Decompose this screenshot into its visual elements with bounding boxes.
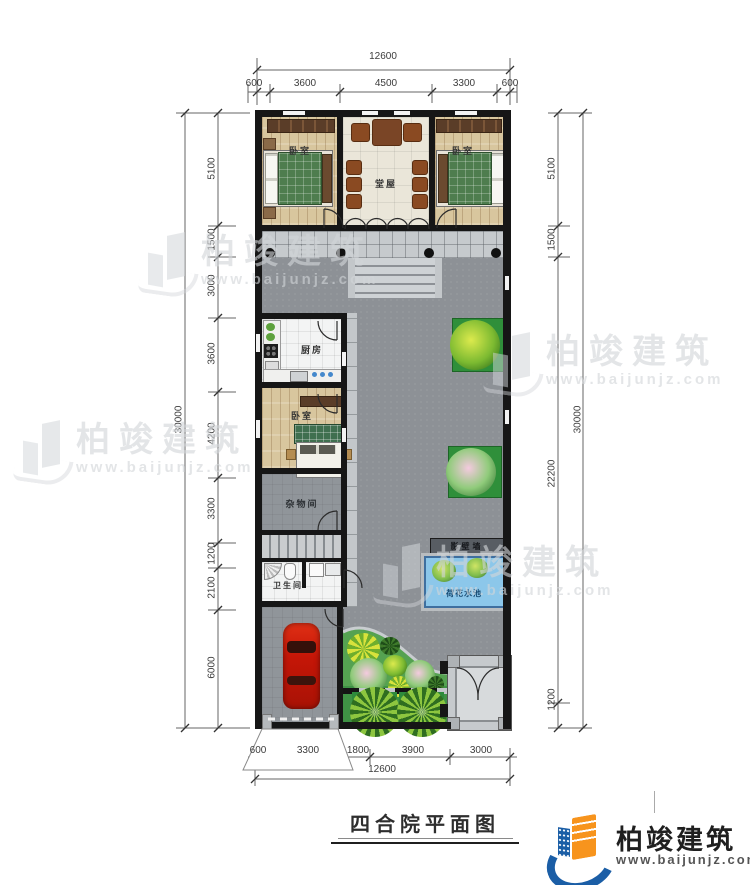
room-label-kitchen: 厨房 [292, 343, 332, 356]
dim-left-seg: 4200 [207, 409, 218, 459]
logo-building-orange [572, 814, 596, 860]
dim-top-seg: 3300 [444, 78, 484, 89]
hall-chair [346, 177, 362, 192]
plant-pot [266, 333, 275, 341]
porch-column [336, 248, 346, 258]
window [256, 334, 260, 352]
window [505, 410, 509, 424]
hall-chair [412, 160, 428, 175]
dim-bottom-seg: 3000 [461, 745, 501, 756]
double-sink [290, 371, 308, 382]
hall-chair [403, 123, 422, 142]
nightstand [263, 138, 276, 150]
courtyard-tree-2 [446, 448, 496, 496]
watermark: 柏竣建筑 www.baijunjz.com [490, 334, 723, 392]
sheet-divider-line [654, 791, 655, 813]
stairs [262, 535, 341, 558]
window [505, 276, 509, 290]
porch-column [424, 248, 434, 258]
floorplan-sheet: 卧室 堂屋 卧室 厨房 卧室 杂物间 卫生间 影壁墙 荷花水池 12600 60… [0, 0, 750, 885]
label-screen-wall: 影壁墙 [440, 541, 494, 552]
stove [264, 344, 278, 358]
dim-right-seg: 1500 [547, 215, 558, 265]
bed-bench [322, 154, 332, 203]
room-label-bedroom-tr: 卧室 [443, 144, 483, 157]
gate-wall-stub [440, 661, 448, 674]
appliance-dot [320, 372, 325, 377]
window [256, 420, 260, 438]
window [394, 111, 410, 115]
window [342, 352, 346, 366]
car [283, 623, 320, 709]
hall-chair [351, 123, 370, 142]
dim-left-total: 30000 [174, 395, 185, 445]
room-label-hall: 堂屋 [366, 177, 406, 190]
dim-bottom-seg: 1800 [338, 745, 378, 756]
lotus-leaf [466, 558, 488, 578]
dim-top-seg: 600 [234, 78, 274, 89]
window [455, 111, 477, 115]
hall-table [372, 119, 402, 146]
watermark-url: www.baijunjz.com [546, 371, 723, 388]
bed-bench [438, 154, 448, 203]
watermark-brand: 柏竣建筑 [76, 422, 253, 459]
dim-left-seg: 3600 [207, 329, 218, 379]
room-label-bedroom-mid: 卧室 [282, 409, 322, 422]
dim-top-seg: 4500 [366, 78, 406, 89]
hall-chair [412, 177, 428, 192]
bed-duvet [448, 152, 492, 205]
nightstand [263, 207, 276, 219]
dim-right-seg: 5100 [547, 144, 558, 194]
porch-steps [348, 258, 442, 298]
window [283, 111, 305, 115]
wall-kitchen-bottom [262, 382, 341, 388]
gate-wall-stub [440, 704, 448, 717]
gate-inner [455, 666, 506, 722]
dim-bottom-total: 12600 [362, 764, 402, 775]
gate-pier [447, 655, 460, 668]
wardrobe [300, 396, 344, 407]
wall-outer-bottom [255, 722, 451, 729]
hall-chair [412, 194, 428, 209]
watermark-building-icon [20, 422, 66, 480]
wall-bedroom-bottom [262, 468, 341, 474]
car-rear-window [287, 676, 316, 685]
label-lotus-pond: 荷花水池 [438, 588, 490, 599]
dim-left-seg: 2100 [207, 563, 218, 613]
garage-door-post [262, 714, 272, 731]
walkway-strip [347, 313, 357, 607]
wall-room-divider [429, 110, 435, 231]
dim-bottom-seg: 3300 [288, 745, 328, 756]
dim-right-seg: 22200 [547, 449, 558, 499]
wall-garage-right [337, 607, 343, 729]
room-label-bathroom: 卫生间 [264, 580, 312, 591]
appliance-dot [312, 372, 317, 377]
title-underline-thin [338, 838, 513, 839]
plant-pot [266, 323, 275, 331]
washer [309, 563, 324, 577]
watermark-building-icon [145, 234, 191, 292]
watermark-url: www.baijunjz.com [76, 459, 253, 476]
drawing-title: 四合院平面图 [335, 808, 515, 837]
dim-right-seg: 1200 [547, 675, 558, 725]
bed-pillows [300, 445, 336, 454]
dim-left-seg: 3000 [207, 261, 218, 311]
bed-pillows [265, 153, 278, 204]
wall-wing-top [262, 313, 347, 319]
wall-storage-bottom [262, 530, 347, 535]
dim-left-seg: 1500 [207, 215, 218, 265]
logo-url-text: www.baijunjz.com [616, 852, 750, 867]
logo-building-blue [558, 827, 570, 857]
dim-left-seg: 6000 [207, 643, 218, 693]
porch [262, 231, 503, 258]
hall-chair [346, 160, 362, 175]
logo-mark [546, 810, 610, 876]
watermark: 柏竣建筑 www.baijunjz.com [20, 422, 253, 480]
lotus-leaf [432, 560, 456, 582]
garden-plant-green-1 [383, 655, 407, 677]
bathroom-sink [325, 563, 341, 576]
room-label-bedroom-tl: 卧室 [280, 144, 320, 157]
window [362, 111, 378, 115]
nightstand [286, 449, 296, 460]
dim-right-total: 30000 [573, 395, 584, 445]
garden-plant-dark-1 [380, 637, 400, 655]
dim-top-total: 12600 [363, 51, 403, 62]
dim-left-seg: 3300 [207, 484, 218, 534]
dim-top-seg: 600 [490, 78, 530, 89]
garage-door-post [329, 714, 339, 731]
porch-column [265, 248, 275, 258]
dim-left-seg: 5100 [207, 144, 218, 194]
title-underline-thick [331, 842, 519, 844]
porch-column [491, 248, 501, 258]
bed-duvet [278, 152, 322, 205]
toilet [284, 563, 296, 580]
dim-bottom-seg: 600 [238, 745, 278, 756]
cabinet [436, 119, 502, 133]
watermark-brand: 柏竣建筑 [546, 334, 723, 371]
cabinet [267, 119, 335, 133]
window [342, 428, 346, 442]
car-windshield [287, 641, 316, 653]
dim-top-seg: 3600 [285, 78, 325, 89]
wall-room-divider [337, 110, 343, 231]
wall-bathroom-bottom [262, 601, 347, 607]
wall-topband-bottom [255, 225, 511, 231]
courtyard-tree-1 [450, 320, 500, 370]
bed-headboard [294, 424, 344, 444]
dim-bottom-seg: 3900 [393, 745, 433, 756]
hall-chair [346, 194, 362, 209]
appliance-dot [328, 372, 333, 377]
palm-tree-1 [350, 687, 400, 737]
room-label-storage: 杂物间 [276, 497, 328, 510]
